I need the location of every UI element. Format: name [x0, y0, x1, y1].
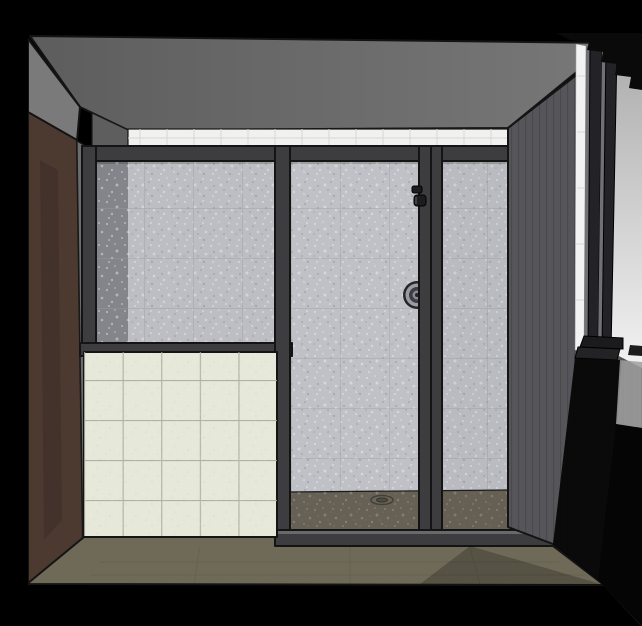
bottom-rail-lip — [277, 531, 551, 534]
render-canvas — [0, 0, 642, 626]
frame-panel-stile — [431, 146, 442, 546]
glass-panel-left — [95, 161, 275, 344]
cream-tile-speckle — [84, 352, 277, 537]
light-patch-lower — [616, 360, 642, 428]
bathroom-3d-render — [0, 0, 642, 626]
top-black-band — [0, 0, 642, 34]
left-black-band — [0, 0, 28, 626]
glass-door-center — [290, 161, 419, 530]
frame-left-stile — [82, 146, 96, 356]
frame-top-rail — [82, 146, 553, 161]
